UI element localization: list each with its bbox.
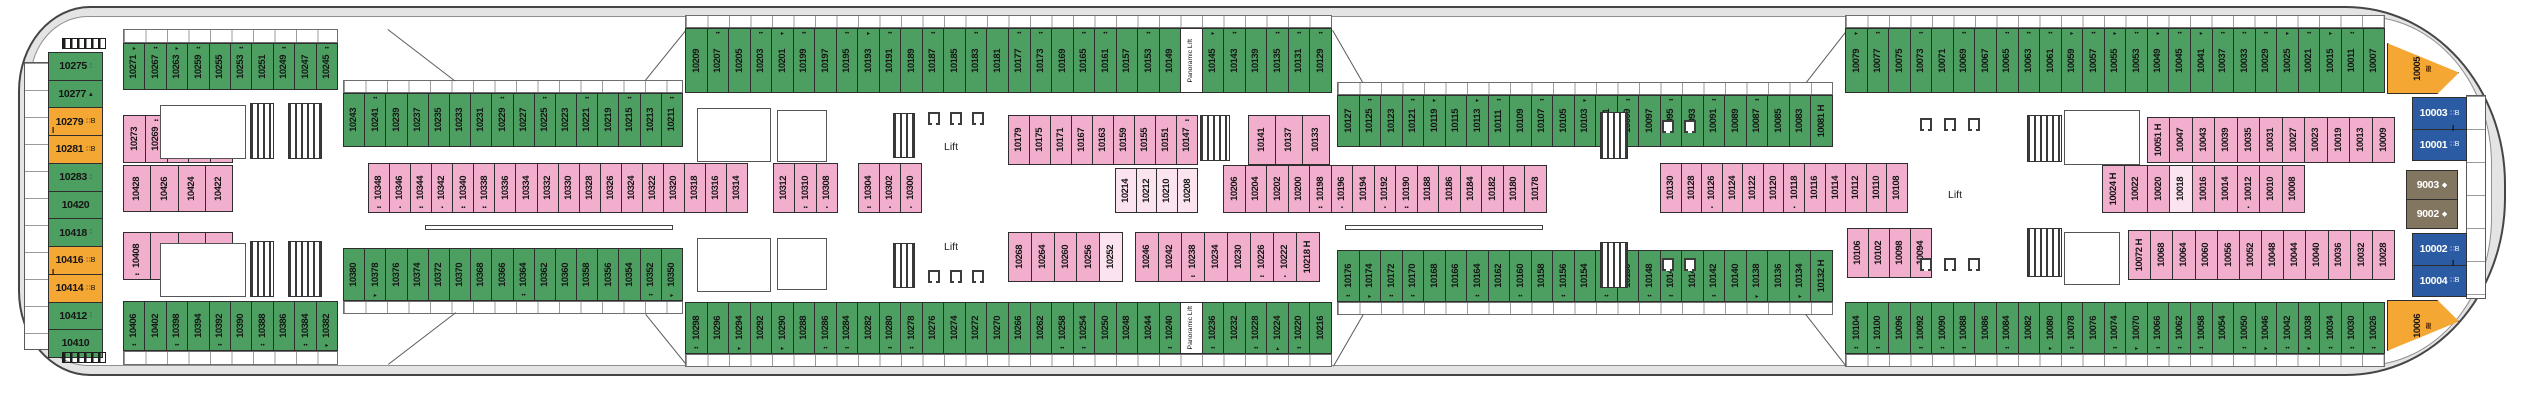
cabin-10324[interactable]: 10324	[622, 164, 643, 212]
cabin-10259[interactable]: 10259••	[188, 44, 209, 89]
cabin-10134[interactable]: 10134▸	[1790, 251, 1812, 301]
cabin-10010[interactable]: 10010	[2260, 166, 2282, 212]
cabin-10344[interactable]: 10344▪▪	[411, 164, 432, 212]
cabin-10121[interactable]: 10121••	[1403, 96, 1425, 146]
cabin-10202[interactable]: 10202	[1267, 166, 1289, 212]
cabin-10326[interactable]: 10326	[601, 164, 622, 212]
cabin-10191[interactable]: 10191••	[880, 29, 902, 92]
cabin-10131[interactable]: 10131••	[1289, 29, 1311, 92]
cabin-10188[interactable]: 10188	[1418, 166, 1440, 212]
cabin-10372[interactable]: 10372	[429, 249, 450, 300]
cabin-10097[interactable]: 10097	[1639, 96, 1661, 146]
cabin-10294[interactable]: 10294▸	[729, 303, 751, 353]
cabin-10214[interactable]: 10214	[1116, 169, 1137, 212]
cabin-10185[interactable]: 10185	[944, 29, 966, 92]
cabin-10232[interactable]: 10232	[1224, 303, 1246, 353]
cabin-10199[interactable]: 10199••	[794, 29, 816, 92]
cabin-10243[interactable]: 10243	[344, 94, 365, 146]
cabin-10352[interactable]: 10352••	[641, 249, 662, 300]
cabin-10194[interactable]: 10194	[1353, 166, 1375, 212]
cabin-10235[interactable]: 10235	[429, 94, 450, 146]
cabin-10223[interactable]: 10223	[556, 94, 577, 146]
cabin-10250[interactable]: 10250	[1095, 303, 1117, 353]
cabin-10426[interactable]: 10426	[151, 166, 178, 211]
cabin-10049[interactable]: 10049▸	[2148, 29, 2170, 92]
cabin-10159[interactable]: 10159	[1114, 116, 1135, 164]
cabin-10119[interactable]: 10119▸	[1424, 96, 1446, 146]
cabin-10105[interactable]: 10105	[1553, 96, 1575, 146]
cabin-10019[interactable]: 10019	[2328, 118, 2350, 162]
cabin-10128[interactable]: 10128	[1682, 164, 1703, 212]
cabin-10183[interactable]: 10183••	[966, 29, 988, 92]
cabin-10039[interactable]: 10039	[2215, 118, 2237, 162]
cabin-10302[interactable]: 10302▪	[880, 164, 901, 212]
cabin-10009[interactable]: 10009	[2373, 118, 2394, 162]
cabin-10392[interactable]: 10392••	[210, 302, 231, 350]
cabin-10124[interactable]: 10124	[1723, 164, 1744, 212]
cabin-10098[interactable]: 10098	[1890, 229, 1911, 277]
cabin-10330[interactable]: 10330	[559, 164, 580, 212]
cabin-10258[interactable]: 10258••	[1052, 303, 1074, 353]
cabin-10063[interactable]: 10063••	[2019, 29, 2041, 92]
cabin-10112[interactable]: 10112	[1846, 164, 1867, 212]
cabin-10374[interactable]: 10374	[408, 249, 429, 300]
cabin-10238[interactable]: 10238▪▪	[1182, 233, 1205, 281]
cabin-10109[interactable]: 10109	[1510, 96, 1532, 146]
cabin-10123[interactable]: 10123	[1381, 96, 1403, 146]
cabin-10038[interactable]: 10038▸	[2299, 303, 2321, 353]
cabin-10211[interactable]: 10211••	[662, 94, 682, 146]
cabin-10312[interactable]: 10312	[774, 164, 795, 212]
cabin-10081H[interactable]: 10081 H	[1811, 96, 1832, 146]
cabin-10192[interactable]: 10192▪	[1375, 166, 1397, 212]
cabin-10036[interactable]: 10036	[2329, 231, 2351, 279]
cabin-10137[interactable]: 10137	[1276, 116, 1303, 164]
cabin-10247[interactable]: 10247	[295, 44, 316, 89]
cabin-10110[interactable]: 10110	[1867, 164, 1888, 212]
cabin-10059[interactable]: 10059▸	[2062, 29, 2084, 92]
cabin-10168[interactable]: 10168	[1424, 251, 1446, 301]
cabin-10074[interactable]: 10074••	[2105, 303, 2127, 353]
cabin-10229[interactable]: 10229••	[492, 94, 513, 146]
cabin-10386[interactable]: 10386	[274, 302, 295, 350]
cabin-10267[interactable]: 10267••	[145, 44, 166, 89]
cabin-10015[interactable]: 10015▸	[2320, 29, 2342, 92]
cabin-10176[interactable]: 10176••	[1338, 251, 1360, 301]
cabin-10354[interactable]: 10354	[619, 249, 640, 300]
cabin-10388[interactable]: 10388••	[252, 302, 273, 350]
cabin-10348[interactable]: 10348▪▪	[369, 164, 390, 212]
cabin-10078[interactable]: 10078••	[2062, 303, 2084, 353]
cabin-10264[interactable]: 10264	[1032, 233, 1055, 281]
cabin-10274[interactable]: 10274	[944, 303, 966, 353]
cabin-10018[interactable]: 10018	[2170, 166, 2192, 212]
cabin-10157[interactable]: 10157	[1117, 29, 1139, 92]
cabin-10143[interactable]: 10143••	[1224, 29, 1246, 92]
cabin-10182[interactable]: 10182	[1482, 166, 1504, 212]
cabin-10044[interactable]: 10044	[2284, 231, 2306, 279]
cabin-10141[interactable]: 10141	[1249, 116, 1276, 164]
cabin-10083[interactable]: 10083	[1790, 96, 1812, 146]
cabin-10230[interactable]: 10230	[1228, 233, 1251, 281]
cabin-10296[interactable]: 10296	[708, 303, 730, 353]
cabin-10138[interactable]: 10138▸	[1747, 251, 1769, 301]
cabin-10079[interactable]: 10079▸	[1846, 29, 1868, 92]
cabin-10139[interactable]: 10139	[1246, 29, 1268, 92]
cabin-10300[interactable]: 10300▪	[901, 164, 921, 212]
cabin-10198[interactable]: 10198▪▪	[1310, 166, 1332, 212]
cabin-10248[interactable]: 10248	[1117, 303, 1139, 353]
cabin-10160[interactable]: 10160••	[1510, 251, 1532, 301]
cabin-10420[interactable]: 10420	[49, 192, 102, 220]
cabin-10136[interactable]: 10136	[1768, 251, 1790, 301]
cabin-10290[interactable]: 10290▸	[772, 303, 794, 353]
cabin-10402[interactable]: 10402	[145, 302, 166, 350]
cabin-10292[interactable]: 10292	[751, 303, 773, 353]
cabin-10197[interactable]: 10197	[815, 29, 837, 92]
cabin-10153[interactable]: 10153••	[1138, 29, 1160, 92]
cabin-10142[interactable]: 10142••	[1704, 251, 1726, 301]
cabin-10277[interactable]: 10277▴	[49, 81, 102, 109]
cabin-10028[interactable]: 10028	[2373, 231, 2394, 279]
cabin-10328[interactable]: 10328	[580, 164, 601, 212]
cabin-10034[interactable]: 10034••	[2320, 303, 2342, 353]
cabin-10024H[interactable]: 10024 H	[2103, 166, 2125, 212]
cabin-10042[interactable]: 10042••	[2277, 303, 2299, 353]
cabin-10125[interactable]: 10125••	[1360, 96, 1382, 146]
cabin-10272[interactable]: 10272	[966, 303, 988, 353]
cabin-10016[interactable]: 10016	[2193, 166, 2215, 212]
cabin-10022[interactable]: 10022	[2125, 166, 2147, 212]
cabin-10210[interactable]: 10210	[1157, 169, 1178, 212]
cabin-10251[interactable]: 10251	[252, 44, 273, 89]
cabin-10322[interactable]: 10322	[643, 164, 664, 212]
cabin-10043[interactable]: 10043	[2193, 118, 2215, 162]
cabin-10334[interactable]: 10334	[516, 164, 537, 212]
cabin-10204[interactable]: 10204	[1246, 166, 1268, 212]
cabin-10108[interactable]: 10108	[1887, 164, 1907, 212]
cabin-10273[interactable]: 10273	[124, 116, 146, 162]
cabin-10262[interactable]: 10262	[1031, 303, 1053, 353]
cabin-10220[interactable]: 10220••	[1289, 303, 1311, 353]
cabin-10253[interactable]: 10253••	[231, 44, 252, 89]
cabin-10398[interactable]: 10398••	[167, 302, 188, 350]
cabin-10275[interactable]: 10275∶	[49, 53, 102, 81]
cabin-10002[interactable]: 10002∷B	[2413, 234, 2466, 266]
cabin-10030[interactable]: 10030••	[2342, 303, 2364, 353]
cabin-10227[interactable]: 10227	[514, 94, 535, 146]
cabin-10226[interactable]: 10226▪▪	[1251, 233, 1274, 281]
cabin-10001[interactable]: 10001∷B	[2413, 130, 2466, 161]
cabin-9003[interactable]: 9003◆	[2407, 171, 2457, 200]
cabin-10173[interactable]: 10173••	[1031, 29, 1053, 92]
cabin-10054[interactable]: 10054	[2213, 303, 2235, 353]
cabin-10165[interactable]: 10165••	[1074, 29, 1096, 92]
cabin-10073[interactable]: 10073••	[1911, 29, 1933, 92]
cabin-10244[interactable]: 10244	[1138, 303, 1160, 353]
cabin-10278[interactable]: 10278••	[901, 303, 923, 353]
cabin-10422[interactable]: 10422	[206, 166, 232, 211]
cabin-10208[interactable]: 10208	[1178, 169, 1198, 212]
cabin-10032[interactable]: 10032	[2351, 231, 2373, 279]
cabin-10225[interactable]: 10225••	[535, 94, 556, 146]
cabin-10205[interactable]: 10205	[729, 29, 751, 92]
cabin-10145[interactable]: 10145▸	[1203, 29, 1225, 92]
cabin-10053[interactable]: 10053••	[2126, 29, 2148, 92]
cabin-10069[interactable]: 10069••	[1954, 29, 1976, 92]
cabin-10241[interactable]: 10241••	[365, 94, 386, 146]
cabin-10203[interactable]: 10203••	[751, 29, 773, 92]
cabin-10130[interactable]: 10130	[1661, 164, 1682, 212]
cabin-10174[interactable]: 10174▸	[1360, 251, 1382, 301]
cabin-10100[interactable]: 10100••	[1868, 303, 1890, 353]
cabin-10162[interactable]: 10162	[1489, 251, 1511, 301]
cabin-10004[interactable]: 10004∷B	[2413, 266, 2466, 297]
cabin-10040[interactable]: 10040	[2306, 231, 2328, 279]
cabin-10266[interactable]: 10266	[1009, 303, 1031, 353]
cabin-10171[interactable]: 10171	[1051, 116, 1072, 164]
cabin-10089[interactable]: 10089	[1725, 96, 1747, 146]
cabin-10346[interactable]: 10346▪	[390, 164, 411, 212]
cabin-10161[interactable]: 10161••	[1095, 29, 1117, 92]
cabin-10342[interactable]: 10342▪	[432, 164, 453, 212]
cabin-10116[interactable]: 10116	[1805, 164, 1826, 212]
cabin-10283[interactable]: 10283∶	[49, 164, 102, 192]
cabin-10236[interactable]: 10236••	[1203, 303, 1225, 353]
cabin-10268[interactable]: 10268	[1009, 233, 1032, 281]
cabin-10376[interactable]: 10376	[386, 249, 407, 300]
cabin-10338[interactable]: 10338▪▪	[474, 164, 495, 212]
cabin-10014[interactable]: 10014	[2215, 166, 2237, 212]
cabin-10270[interactable]: 10270	[987, 303, 1009, 353]
cabin-10246[interactable]: 10246	[1136, 233, 1159, 281]
cabin-10318[interactable]: 10318	[685, 164, 706, 212]
cabin-10051H[interactable]: 10051 H	[2148, 118, 2170, 162]
cabin-10071[interactable]: 10071	[1932, 29, 1954, 92]
cabin-10013[interactable]: 10013	[2350, 118, 2372, 162]
cabin-10111[interactable]: 10111••	[1489, 96, 1511, 146]
cabin-10279[interactable]: 10279∷B	[49, 108, 102, 136]
cabin-10155[interactable]: 10155	[1135, 116, 1156, 164]
cabin-10190[interactable]: 10190▪▪	[1396, 166, 1418, 212]
cabin-10172[interactable]: 10172••	[1381, 251, 1403, 301]
cabin-10096[interactable]: 10096	[1889, 303, 1911, 353]
cabin-10224[interactable]: 10224▴	[1267, 303, 1289, 353]
cabin-10166[interactable]: 10166	[1446, 251, 1468, 301]
cabin-10113[interactable]: 10113▸	[1467, 96, 1489, 146]
cabin-10310[interactable]: 10310▪▪	[795, 164, 816, 212]
cabin-10314[interactable]: 10314	[727, 164, 747, 212]
cabin-10011[interactable]: 10011••	[2342, 29, 2364, 92]
cabin-10362[interactable]: 10362	[535, 249, 556, 300]
cabin-10286[interactable]: 10286••	[815, 303, 837, 353]
cabin-10092[interactable]: 10092••	[1911, 303, 1933, 353]
cabin-10114[interactable]: 10114	[1826, 164, 1847, 212]
cabin-10003[interactable]: 10003∷B	[2413, 98, 2466, 130]
cabin-10412[interactable]: 10412∶	[49, 303, 102, 331]
cabin-10196[interactable]: 10196▪	[1332, 166, 1354, 212]
cabin-10184[interactable]: 10184	[1461, 166, 1483, 212]
cabin-10060[interactable]: 10060	[2196, 231, 2218, 279]
cabin-10076[interactable]: 10076	[2083, 303, 2105, 353]
cabin-10255[interactable]: 10255	[210, 44, 231, 89]
cabin-10186[interactable]: 10186	[1439, 166, 1461, 212]
cabin-10107[interactable]: 10107••	[1532, 96, 1554, 146]
cabin-10424[interactable]: 10424	[179, 166, 206, 211]
cabin-10195[interactable]: 10195••	[837, 29, 859, 92]
cabin-10106[interactable]: 10106	[1848, 229, 1869, 277]
cabin-10120[interactable]: 10120	[1764, 164, 1785, 212]
cabin-10207[interactable]: 10207••	[708, 29, 730, 92]
cabin-10304[interactable]: 10304▪▪	[859, 164, 880, 212]
cabin-10416[interactable]: 10416∷B	[49, 247, 102, 275]
cabin-10181[interactable]: 10181	[987, 29, 1009, 92]
cabin-10062[interactable]: 10062••	[2169, 303, 2191, 353]
cabin-10164[interactable]: 10164••	[1467, 251, 1489, 301]
cabin-10056[interactable]: 10056	[2218, 231, 2240, 279]
cabin-10368[interactable]: 10368	[471, 249, 492, 300]
cabin-10240[interactable]: 10240••	[1160, 303, 1182, 353]
cabin-10206[interactable]: 10206	[1224, 166, 1246, 212]
cabin-10254[interactable]: 10254••	[1074, 303, 1096, 353]
cabin-10356[interactable]: 10356	[598, 249, 619, 300]
cabin-10215[interactable]: 10215••	[619, 94, 640, 146]
cabin-10212[interactable]: 10212	[1137, 169, 1158, 212]
cabin-10360[interactable]: 10360	[556, 249, 577, 300]
cabin-10281[interactable]: 10281∷B	[49, 136, 102, 164]
cabin-10231[interactable]: 10231	[471, 94, 492, 146]
cabin-10070[interactable]: 10070▸	[2126, 303, 2148, 353]
cabin-10406[interactable]: 10406••	[124, 302, 145, 350]
cabin-10428[interactable]: 10428	[124, 166, 151, 211]
cabin-10178[interactable]: 10178	[1525, 166, 1546, 212]
cabin-10336[interactable]: 10336	[495, 164, 516, 212]
cabin-10065[interactable]: 10065••	[1997, 29, 2019, 92]
cabin-10046[interactable]: 10046▸	[2256, 303, 2278, 353]
cabin-10390[interactable]: 10390	[231, 302, 252, 350]
cabin-10048[interactable]: 10048	[2262, 231, 2284, 279]
cabin-10366[interactable]: 10366	[492, 249, 513, 300]
cabin-10007[interactable]: 10007	[2364, 29, 2385, 92]
cabin-10077[interactable]: 10077••	[1868, 29, 1890, 92]
cabin-10104[interactable]: 10104••	[1846, 303, 1868, 353]
cabin-10237[interactable]: 10237	[408, 94, 429, 146]
cabin-10127[interactable]: 10127	[1338, 96, 1360, 146]
cabin-10008[interactable]: 10008	[2283, 166, 2304, 212]
cabin-10088[interactable]: 10088••	[1954, 303, 1976, 353]
cabin-10091[interactable]: 10091••	[1704, 96, 1726, 146]
cabin-10072H[interactable]: 10072 H	[2129, 231, 2151, 279]
cabin-10058[interactable]: 10058••	[2191, 303, 2213, 353]
cabin-10239[interactable]: 10239	[386, 94, 407, 146]
cabin-10045[interactable]: 10045••	[2169, 29, 2191, 92]
cabin-10033[interactable]: 10033••	[2234, 29, 2256, 92]
cabin-10057[interactable]: 10057••	[2083, 29, 2105, 92]
cabin-10126[interactable]: 10126▪	[1702, 164, 1723, 212]
cabin-10282[interactable]: 10282	[858, 303, 880, 353]
cabin-10080[interactable]: 10080▸	[2040, 303, 2062, 353]
cabin-10189[interactable]: 10189	[901, 29, 923, 92]
cabin-10055[interactable]: 10055▸	[2105, 29, 2127, 92]
cabin-10084[interactable]: 10084••	[1997, 303, 2019, 353]
cabin-10233[interactable]: 10233	[450, 94, 471, 146]
cabin-10242[interactable]: 10242	[1159, 233, 1182, 281]
cabin-10382[interactable]: 10382▸	[317, 302, 337, 350]
cabin-10193[interactable]: 10193▸	[858, 29, 880, 92]
cabin-10021[interactable]: 10021••	[2299, 29, 2321, 92]
cabin-10271[interactable]: 10271▸	[124, 44, 145, 89]
cabin-10064[interactable]: 10064	[2173, 231, 2195, 279]
cabin-10170[interactable]: 10170••	[1403, 251, 1425, 301]
cabin-10148[interactable]: 10148••	[1639, 251, 1661, 301]
cabin-10167[interactable]: 10167	[1072, 116, 1093, 164]
cabin-10129[interactable]: 10129••	[1310, 29, 1331, 92]
cabin-10066[interactable]: 10066••	[2148, 303, 2170, 353]
cabin-10370[interactable]: 10370	[450, 249, 471, 300]
cabin-10179[interactable]: 10179	[1009, 116, 1030, 164]
cabin-10276[interactable]: 10276	[923, 303, 945, 353]
cabin-10394[interactable]: 10394	[188, 302, 209, 350]
cabin-10027[interactable]: 10027	[2283, 118, 2305, 162]
cabin-10288[interactable]: 10288	[794, 303, 816, 353]
cabin-10263[interactable]: 10263▸	[167, 44, 188, 89]
cabin-10086[interactable]: 10086	[1975, 303, 1997, 353]
cabin-10308[interactable]: 10308▪	[817, 164, 837, 212]
cabin-10418[interactable]: 10418∶	[49, 219, 102, 247]
cabin-10169[interactable]: 10169	[1052, 29, 1074, 92]
cabin-10085[interactable]: 10085	[1768, 96, 1790, 146]
cabin-10187[interactable]: 10187••	[923, 29, 945, 92]
cabin-10249[interactable]: 10249••	[274, 44, 295, 89]
cabin-10026[interactable]: 10026••	[2364, 303, 2385, 353]
cabin-10090[interactable]: 10090••	[1932, 303, 1954, 353]
cabin-10047[interactable]: 10047	[2170, 118, 2192, 162]
cabin-10320[interactable]: 10320	[664, 164, 685, 212]
cabin-10061[interactable]: 10061••	[2040, 29, 2062, 92]
cabin-10135[interactable]: 10135••	[1267, 29, 1289, 92]
cabin-10298[interactable]: 10298••	[686, 303, 708, 353]
cabin-10068[interactable]: 10068	[2151, 231, 2173, 279]
cabin-9002[interactable]: 9002◆	[2407, 200, 2457, 228]
cabin-10216[interactable]: 10216	[1310, 303, 1331, 353]
cabin-10234[interactable]: 10234	[1205, 233, 1228, 281]
cabin-10350[interactable]: 10350▸	[662, 249, 682, 300]
cabin-10156[interactable]: 10156••	[1553, 251, 1575, 301]
cabin-10218H[interactable]: 10218 H	[1297, 233, 1319, 281]
cabin-10140[interactable]: 10140	[1725, 251, 1747, 301]
cabin-10332[interactable]: 10332	[538, 164, 559, 212]
cabin-10158[interactable]: 10158	[1532, 251, 1554, 301]
cabin-10252[interactable]: 10252	[1100, 233, 1122, 281]
cabin-10201[interactable]: 10201▸	[772, 29, 794, 92]
cabin-10280[interactable]: 10280••	[880, 303, 902, 353]
cabin-10221[interactable]: 10221••	[577, 94, 598, 146]
cabin-10023[interactable]: 10023	[2305, 118, 2327, 162]
cabin-10082[interactable]: 10082	[2019, 303, 2041, 353]
cabin-10087[interactable]: 10087••	[1747, 96, 1769, 146]
cabin-10025[interactable]: 10025▸	[2277, 29, 2299, 92]
cabin-10118[interactable]: 10118▪	[1784, 164, 1805, 212]
cabin-10340[interactable]: 10340▪▪	[453, 164, 474, 212]
cabin-10408[interactable]: 10408▪▪	[124, 233, 151, 279]
cabin-10245[interactable]: 10245••	[317, 44, 337, 89]
cabin-10378[interactable]: 10378▸	[365, 249, 386, 300]
cabin-10149[interactable]: 10149	[1160, 29, 1182, 92]
cabin-10115[interactable]: 10115	[1446, 96, 1468, 146]
cabin-10029[interactable]: 10029••	[2256, 29, 2278, 92]
cabin-10050[interactable]: 10050••	[2234, 303, 2256, 353]
cabin-10103[interactable]: 10103▸	[1575, 96, 1597, 146]
